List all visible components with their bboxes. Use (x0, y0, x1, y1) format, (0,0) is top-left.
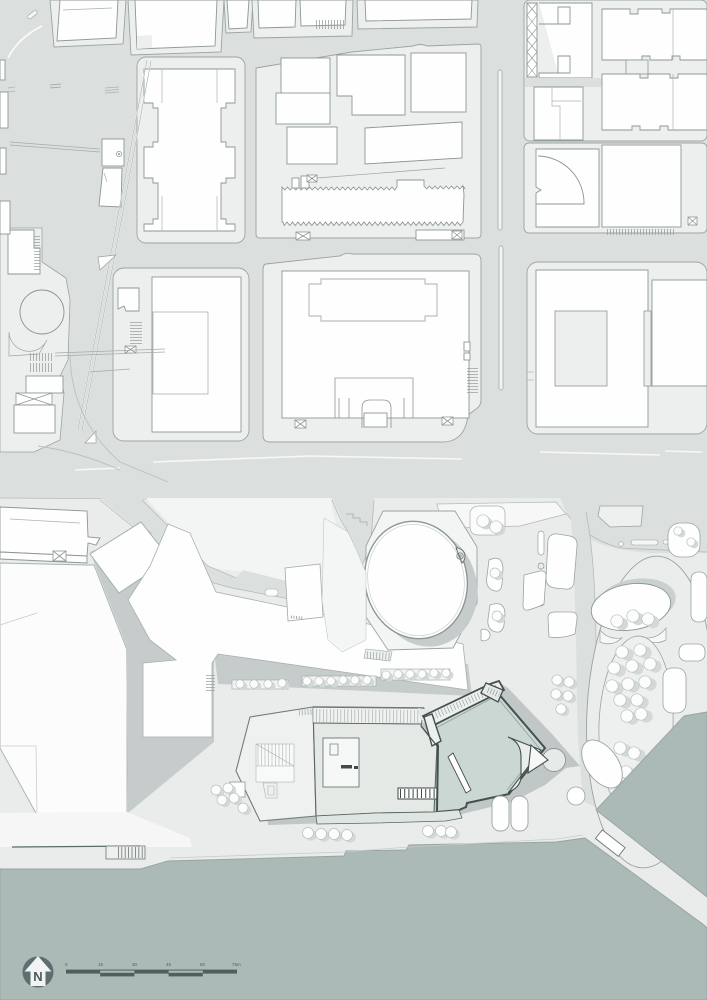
svg-text:60: 60 (200, 962, 206, 967)
svg-text:15: 15 (98, 962, 104, 967)
svg-text:30: 30 (132, 962, 138, 967)
svg-text:45: 45 (166, 962, 172, 967)
svg-text:75m: 75m (232, 962, 241, 967)
svg-text:N: N (33, 969, 42, 984)
